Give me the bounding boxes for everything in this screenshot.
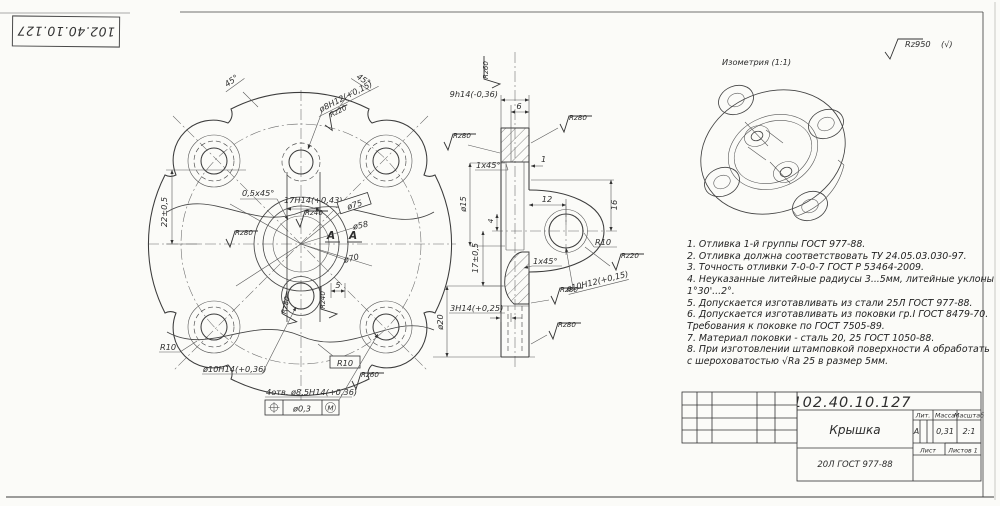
section-dim-12: 12 [542,194,552,204]
section-dim-6: 6 [516,101,521,111]
tech-note-line: 5. Допускается изготавливать из стали 25… [687,298,989,310]
section-dim-1: 1 [541,154,546,164]
position-tolerance-frame: ø0,3 М [265,400,339,415]
section-d20-dim: ø20 [435,314,445,330]
front-slot-dim: 17H14(+0,43) [284,195,342,205]
corner-stamp: 102.40.10.127 [12,15,120,47]
tech-note-line: 1. Отливка 1-й группы ГОСТ 977-88. [687,239,989,251]
tech-note-line: 3. Точность отливки 7-0-0-7 ГОСТ Р 53464… [687,262,989,274]
general-roughness-value: Rz950 [905,39,931,49]
front-r10-left-dim: R10 [160,342,176,352]
title-block-number: 102.40.10.127 [792,395,911,411]
front-dim-5: 5 [335,280,340,290]
mmc-symbol-letter: М [327,403,334,412]
section-dim-16: 16 [609,200,619,210]
tech-note-line: 8. При изготовлении штамповкой поверхнос… [687,344,989,356]
revision-table [682,392,797,443]
drawing-sheet: 45° 45° ø8H12(+0,15) Rz20 22±0,5 [0,0,1000,506]
tech-note-line: 6. Допускается изготавливать из поковки … [687,309,989,321]
title-block-scale-value: 2:1 [963,427,976,436]
front-bottom-hole-dim: ø10H14(+0,36) [202,364,266,374]
title-block-mass-value: 0,31 [936,427,954,436]
title-block-sheet-label: Лист [919,448,936,455]
front-d70-dim: ø70 [342,251,360,265]
corner-stamp-number: 102.40.10.127 [17,23,115,39]
section-rz80-right-flag: Rz80 [569,113,587,122]
title-block-part-name: Крышка [829,423,880,437]
section-chamfer-top: 1x45° [476,160,501,170]
bolt-hole [360,301,412,353]
bolt-hole [360,135,412,187]
front-rz40-flag: Rz40 [305,208,323,217]
position-tolerance-value: ø0,3 [292,404,311,414]
front-view-linework [148,90,456,402]
section-dim-17: 17±0,5 [470,243,480,273]
section-dim-4: 4 [486,218,495,223]
section-dim-3: 3H14(+0,25) [450,303,503,313]
section-chamfer-mid: 1x45° [533,256,558,266]
title-block-mass-header: Масса [935,413,955,420]
title-block-sheets-label: Листов 1 [947,448,978,455]
tech-note-line: с шероховатостью √Ra 25 в размер 5мм. [687,356,989,368]
section-rz20-flag: Rz20 [621,251,639,260]
section-letter-a2: А [348,230,357,242]
isometric-title: Изометрия (1:1) [722,57,791,67]
bolt-hole [188,135,240,187]
front-view-annotations: 45° 45° ø8H12(+0,15) Rz20 22±0,5 [159,69,384,415]
section-rz60-top-flag: Rz60 [481,61,490,79]
tech-note-line: 2. Отливка должна соответствовать ТУ 24.… [687,251,989,263]
general-roughness: Rz950 (√) [885,39,953,59]
front-r10-right-ref-dim: R10 [337,358,353,368]
section-r10-dim: R10 [595,237,611,247]
section-letter-a1: А [326,230,335,242]
section-rz80-bottom-flag: Rz80 [558,320,576,329]
title-block-lit-value: А [913,427,919,436]
technical-requirements: 1. Отливка 1-й группы ГОСТ 977-88. 2. От… [687,239,989,368]
front-rz80-flag: Rz80 [235,228,253,237]
title-block-material: 20Л ГОСТ 977-88 [817,460,893,470]
section-view-annotations: Rz60 9h14(-0,36) 6 Rz80 Rz80 1x45° [435,56,644,357]
tech-note-line: 1°30'...2°. [687,286,989,298]
section-dim-9: 9h14(-0,36) [450,89,498,99]
front-dim-22: 22±0,5 [159,197,169,227]
tech-note-line: 4. Неуказанные литейные радиусы 3...5мм,… [687,274,989,286]
front-rz40-flag-vert: Rz40 [318,291,327,309]
front-rz60-flag: Rz60 [361,370,379,379]
section-d15-dim: ø15 [458,196,468,212]
title-block-scale-header: Масштаб [954,412,984,420]
isometric-view: Изометрия (1:1) [682,57,864,235]
title-block-lit-header: Лит. [915,413,931,420]
front-chamfer-dim: 0,5x45° [242,188,274,198]
title-block: 102.40.10.127 Крышка 20Л ГОСТ 977-88 Лит… [682,392,984,481]
tech-note-line: Требования к поковке по ГОСТ 7505-89. [687,321,989,333]
general-roughness-paren: (√) [941,39,953,49]
isometric-linework [682,69,864,236]
tech-note-line: 7. Материал поковки - сталь 20, 25 ГОСТ … [687,333,989,345]
section-rz80-left-flag: Rz80 [453,131,471,140]
front-angle-left-label: 45° [222,72,240,89]
section-rz80-mid-flag: Rz80 [560,285,578,294]
